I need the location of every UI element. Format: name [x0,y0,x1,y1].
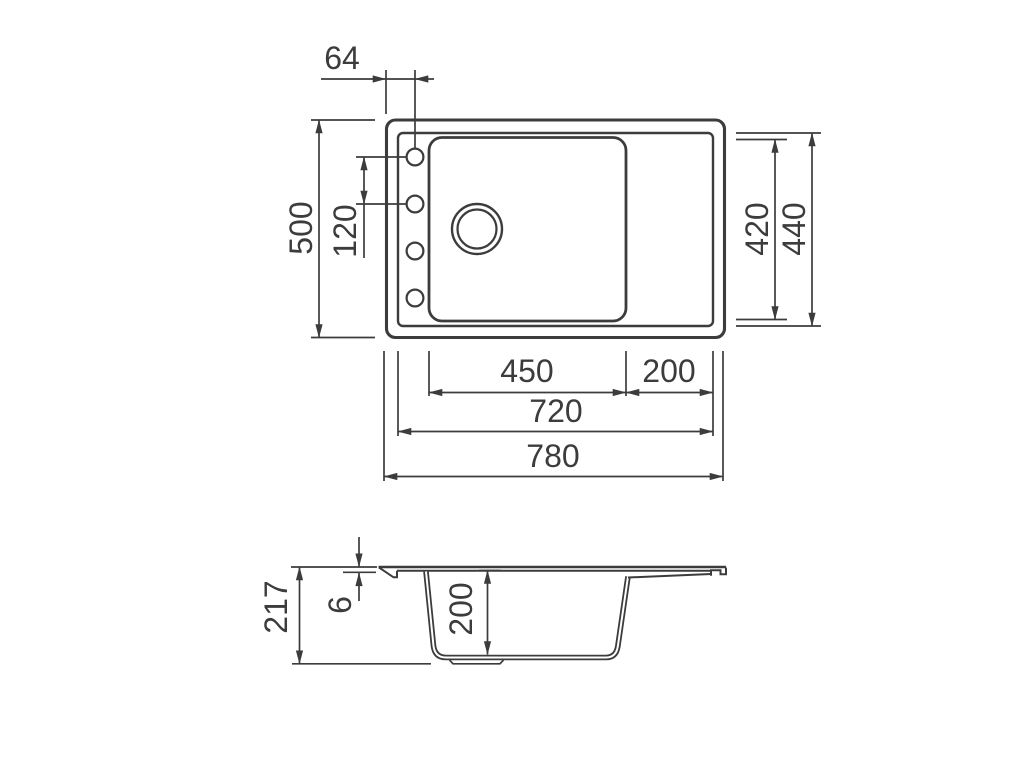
dim-bowl-width: 450 [429,353,626,393]
dim-label-720: 720 [529,393,582,429]
drain-outlet-boss [450,660,504,664]
dim-label-120: 120 [327,204,363,257]
dim-overall-height: 217 [258,567,431,664]
dim-rim-thickness: 6 [322,537,376,614]
dim-label-780: 780 [526,438,579,474]
dim-label-500: 500 [283,201,319,254]
dim-label-200: 200 [642,353,695,389]
section-view: 217 6 200 [258,537,726,664]
section-right-lip [711,568,726,576]
dim-drainer-width: 200 [626,353,713,393]
dim-basin-width: 720 [398,393,713,432]
sink-inner-edge [398,133,713,326]
dim-label-450: 450 [500,353,553,389]
tap-hole-4 [407,290,424,307]
sink-outer-edge [387,120,725,338]
drain-inner-ring [458,210,497,249]
dim-label-64: 64 [324,40,360,76]
dim-bowl-depth: 200 [443,571,501,655]
top-view: 64 500 120 420 440 [283,40,821,481]
sink-technical-drawing: 64 500 120 420 440 [0,0,1024,768]
dim-label-217: 217 [258,580,294,633]
dim-label-440: 440 [776,202,812,255]
dim-label-200-depth: 200 [443,582,479,635]
drainboard-underside [628,574,711,578]
dim-overall-width: 780 [384,438,723,477]
dim-label-420: 420 [739,202,775,255]
tap-hole-3 [407,243,424,260]
section-left-lip [379,568,397,578]
drain-outer-ring [452,204,502,254]
tap-hole-2 [407,196,424,213]
dim-label-6: 6 [322,596,358,614]
technical-drawing-page: 64 500 120 420 440 [0,0,1024,768]
tap-hole-1 [407,149,424,166]
